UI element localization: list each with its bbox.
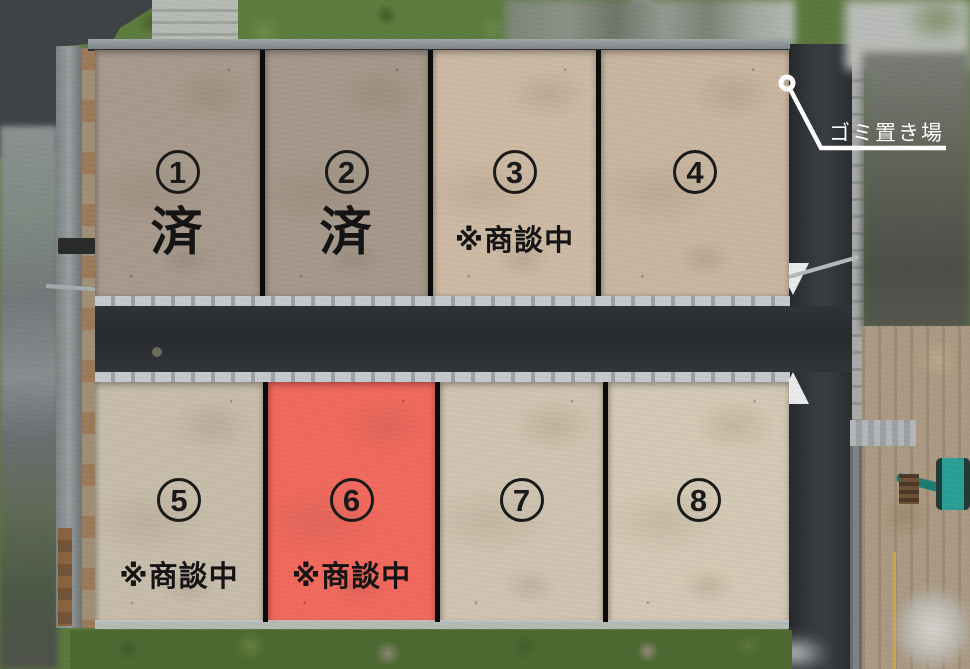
lot-divider-5-6 <box>263 382 268 622</box>
lot-2-status: 済 <box>319 202 373 264</box>
blurred-buildings-left <box>0 126 58 669</box>
lot-1-number-badge: 1 <box>156 150 200 194</box>
blurred-object-bottom-right <box>893 586 970 669</box>
lot-divider-1-2 <box>260 50 265 296</box>
lot-4-number: 4 <box>686 157 703 188</box>
lot-5-status: ※商談中 <box>119 560 238 595</box>
lot-8: 8 <box>608 382 789 622</box>
lot-2: 2 済 <box>265 50 428 296</box>
lot-2-number-badge: 2 <box>325 150 369 194</box>
curb-bottom-edge <box>95 620 789 629</box>
lot-1-status: 済 <box>150 202 204 264</box>
dirt-strip-left <box>82 48 96 628</box>
excavator <box>936 458 970 510</box>
road-gutter-bottom <box>95 372 790 382</box>
gate-bar-left <box>58 238 98 254</box>
lot-6-number: 6 <box>343 485 360 516</box>
grass-area-bottom <box>70 630 792 669</box>
lot-5: 5 ※商談中 <box>95 382 263 622</box>
lot-5-number: 5 <box>170 485 187 516</box>
lot-7-number-badge: 7 <box>500 478 544 522</box>
lot-4-number-badge: 4 <box>673 150 717 194</box>
lot-7: 7 <box>440 382 603 622</box>
lot-3-number-badge: 3 <box>493 150 537 194</box>
lot-divider-2-3 <box>428 50 433 296</box>
lot-divider-7-8 <box>603 382 608 622</box>
lot-6-highlighted: 6 ※商談中 <box>268 382 435 622</box>
garbage-area-label: ゴミ置き場 <box>829 117 944 147</box>
central-road-asphalt <box>95 306 852 372</box>
lot-2-number: 2 <box>338 157 355 188</box>
blurred-green-top-right <box>903 0 970 44</box>
lot-8-number: 8 <box>690 485 707 516</box>
lot-3-number: 3 <box>506 157 523 188</box>
lot-map-aerial-photo: 1 済 2 済 3 ※商談中 4 5 ※商談中 6 ※商談中 7 <box>0 0 970 669</box>
manhole-cover <box>152 347 162 357</box>
lot-5-number-badge: 5 <box>157 478 201 522</box>
road-gutter-top <box>95 296 790 306</box>
lot-6-number-badge: 6 <box>330 478 374 522</box>
lot-divider-6-7 <box>435 382 440 622</box>
lot-1-number: 1 <box>169 157 186 188</box>
lot-3: 3 ※商談中 <box>433 50 596 296</box>
blurred-street-top <box>505 0 795 44</box>
lot-divider-3-4 <box>596 50 601 296</box>
garbage-area-leader-line <box>740 55 970 165</box>
garbage-area-marker-circle <box>781 77 793 89</box>
footbridge-right <box>850 420 916 446</box>
wood-pallet <box>899 474 919 504</box>
lot-6-status: ※商談中 <box>292 560 411 595</box>
rust-fence-left <box>58 528 72 626</box>
lot-1: 1 済 <box>95 50 260 296</box>
lot-8-number-badge: 8 <box>677 478 721 522</box>
lot-3-status: ※商談中 <box>455 224 574 259</box>
lot-7-number: 7 <box>513 485 530 516</box>
